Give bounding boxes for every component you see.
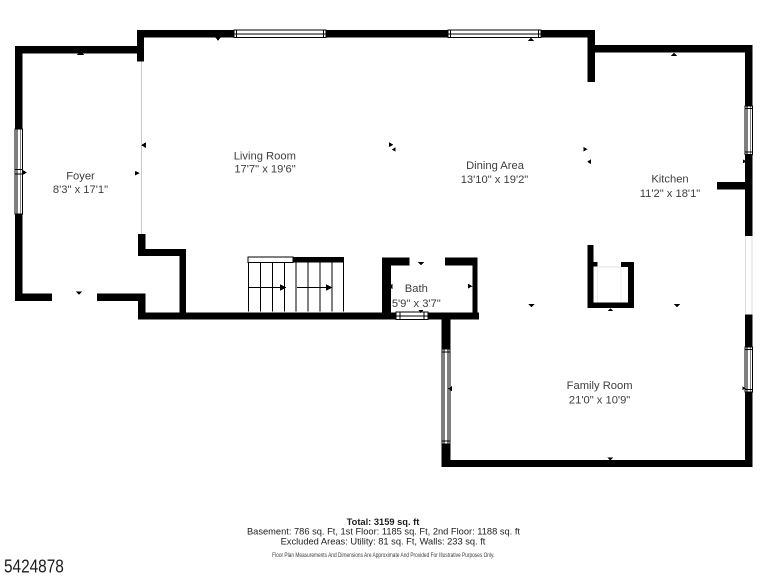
svg-text:11'2" x 18'1": 11'2" x 18'1" [640, 188, 701, 200]
svg-text:Excluded Areas: Utility: 81 sq: Excluded Areas: Utility: 81 sq. Ft, Wall… [281, 537, 486, 547]
svg-text:Bath: Bath [405, 283, 428, 295]
svg-text:21'0" x 10'9": 21'0" x 10'9" [569, 395, 630, 407]
svg-text:Living Room: Living Room [234, 151, 296, 163]
svg-text:5'9" x 3'7": 5'9" x 3'7" [392, 298, 441, 310]
svg-text:17'7" x 19'6": 17'7" x 19'6" [234, 164, 295, 176]
svg-text:Kitchen: Kitchen [651, 173, 688, 185]
svg-text:Foyer: Foyer [66, 171, 95, 183]
svg-text:Dining Area: Dining Area [466, 160, 525, 172]
svg-text:Family Room: Family Room [567, 380, 633, 392]
svg-text:13'10" x 19'2": 13'10" x 19'2" [461, 174, 529, 186]
svg-text:5424878: 5424878 [4, 556, 64, 576]
svg-text:Basement: 786 sq. Ft, 1st Floo: Basement: 786 sq. Ft, 1st Floor: 1185 sq… [247, 527, 520, 537]
svg-text:8'3" x 17'1": 8'3" x 17'1" [53, 184, 108, 196]
svg-text:Floor Plan Measurements And Di: Floor Plan Measurements And Dimensions A… [272, 552, 495, 559]
svg-text:Total: 3159 sq. ft: Total: 3159 sq. ft [347, 517, 420, 527]
